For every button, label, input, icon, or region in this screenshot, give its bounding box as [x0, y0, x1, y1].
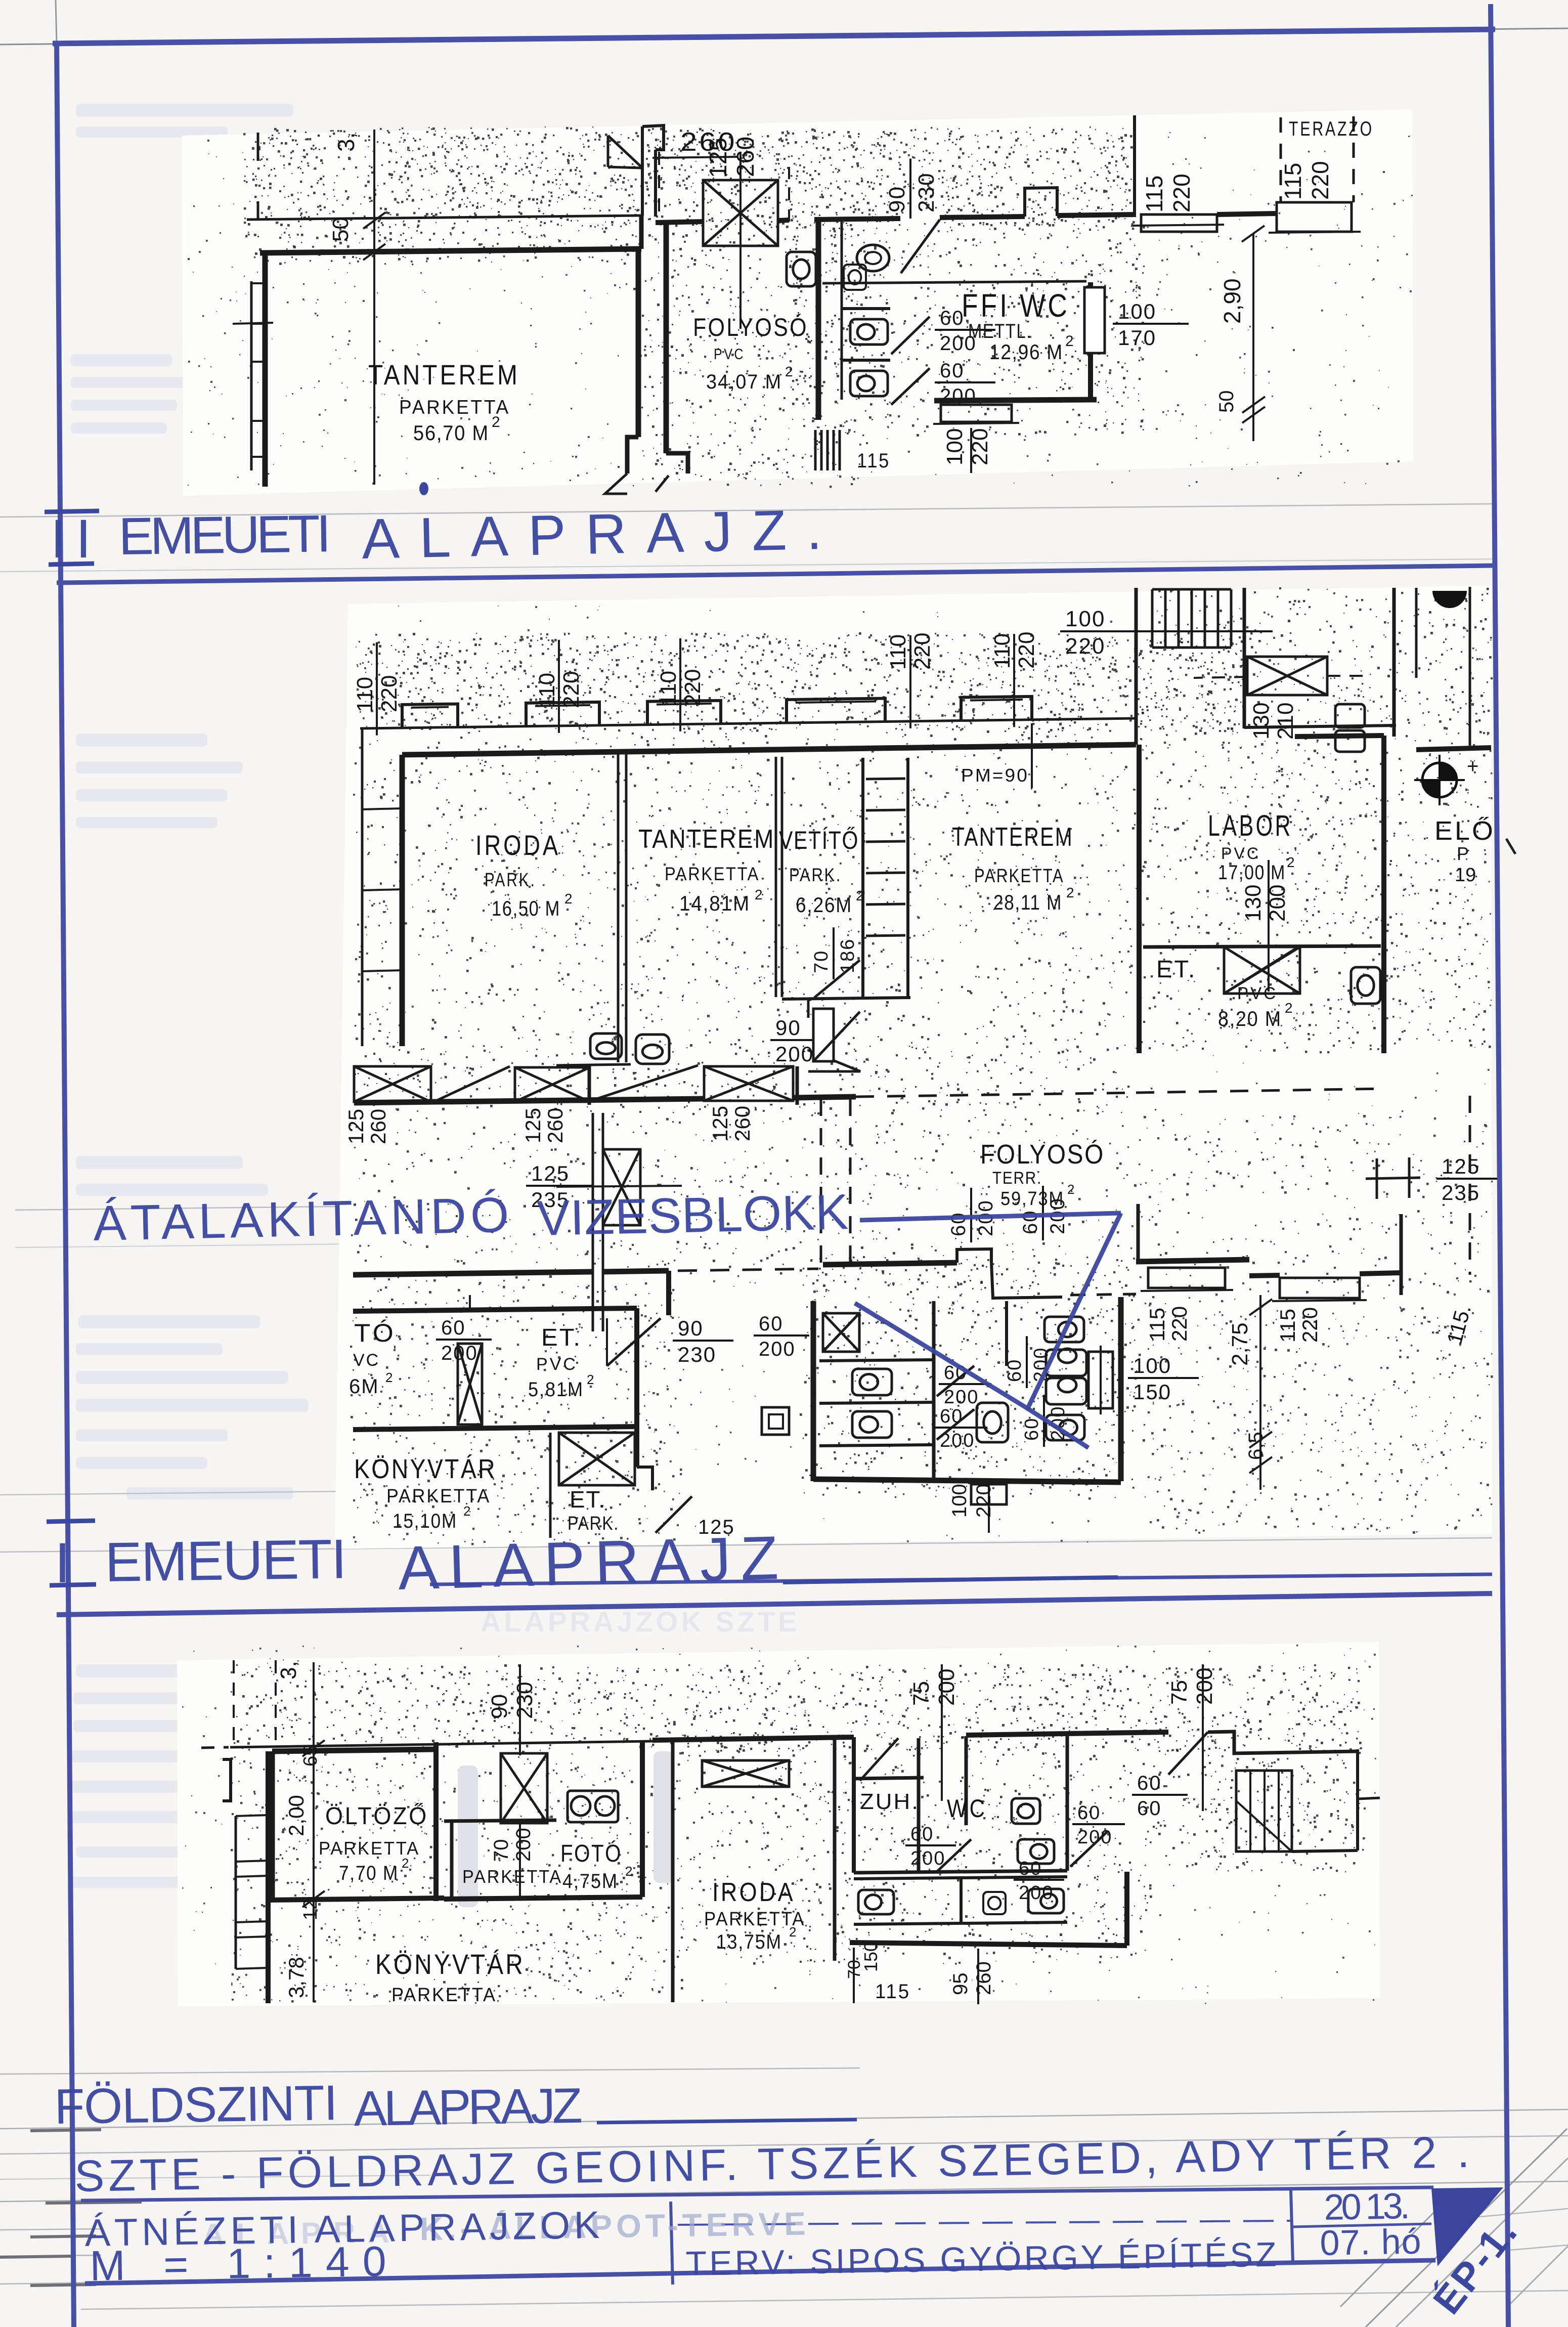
svg-text:110: 110 [990, 633, 1015, 669]
svg-text:ET.: ET. [541, 1324, 582, 1351]
svg-text:95: 95 [949, 1973, 972, 1996]
svg-text:METTL.: METTL. [968, 320, 1032, 342]
svg-text:220: 220 [1298, 1307, 1322, 1343]
svg-text:5,81M: 5,81M [528, 1378, 584, 1401]
svg-text:ALAPRAJZ.: ALAPRAJZ. [361, 498, 822, 571]
svg-text:2: 2 [463, 1503, 470, 1519]
svg-text:VETÍTŐ: VETÍTŐ [779, 826, 859, 854]
svg-text:KÖNYVTÁR: KÖNYVTÁR [354, 1454, 497, 1484]
svg-text:PVC: PVC [714, 346, 745, 363]
svg-text:2: 2 [755, 887, 763, 902]
svg-text:KÖNYVTÁR: KÖNYVTÁR [375, 1948, 525, 1980]
svg-text:70: 70 [811, 950, 832, 973]
svg-text:FOLYOSÓ: FOLYOSÓ [980, 1139, 1105, 1170]
svg-text:260: 260 [730, 1106, 754, 1141]
svg-text:220: 220 [910, 633, 935, 670]
svg-text:LABOR: LABOR [1208, 809, 1293, 842]
svg-text:220: 220 [1168, 174, 1195, 212]
svg-text:130: 130 [1241, 885, 1266, 922]
svg-text:90: 90 [487, 1694, 512, 1719]
svg-text:4,75M: 4,75M [562, 1870, 618, 1892]
svg-text:230: 230 [512, 1682, 537, 1719]
svg-text:235: 235 [1442, 1181, 1480, 1204]
svg-text:260: 260 [973, 1961, 995, 1995]
svg-text:60: 60 [940, 1406, 963, 1427]
svg-text:220: 220 [680, 669, 705, 706]
svg-text:50: 50 [1215, 391, 1238, 413]
svg-text:2: 2 [385, 1370, 393, 1385]
svg-text:2: 2 [1065, 333, 1074, 350]
svg-text:60: 60 [1137, 1797, 1162, 1820]
svg-text:2: 2 [402, 1856, 409, 1871]
svg-text:60: 60 [940, 307, 965, 329]
svg-text:PVC: PVC [536, 1355, 578, 1374]
svg-text:100: 100 [1065, 607, 1105, 631]
svg-text:125: 125 [531, 1161, 570, 1185]
svg-text:110: 110 [886, 634, 910, 670]
svg-text:210: 210 [1273, 703, 1298, 740]
svg-text:6,26M: 6,26M [796, 893, 852, 917]
svg-text:7,70 M: 7,70 M [339, 1862, 399, 1884]
svg-text:8,20 M: 8,20 M [1218, 1007, 1282, 1030]
svg-text:2: 2 [492, 414, 500, 430]
svg-text:TANTEREM: TANTEREM [638, 825, 775, 854]
svg-text:110: 110 [656, 671, 681, 706]
svg-text:100: 100 [942, 428, 967, 465]
svg-text:2: 2 [587, 1372, 594, 1387]
svg-text:TÓ: TÓ [354, 1319, 396, 1347]
svg-text:3,: 3, [333, 133, 359, 152]
svg-text:2: 2 [1287, 854, 1295, 870]
svg-text:60: 60 [1021, 1417, 1042, 1441]
svg-text:150: 150 [860, 1942, 881, 1972]
svg-text:100: 100 [948, 1484, 971, 1518]
svg-text:200: 200 [934, 1669, 959, 1706]
svg-text:230: 230 [914, 173, 939, 212]
svg-text:ET.: ET. [1156, 956, 1197, 983]
svg-text:60: 60 [1137, 1772, 1162, 1794]
svg-text:ALAPRAJZ: ALAPRAJZ [354, 2078, 583, 2136]
svg-text:115: 115 [875, 1980, 910, 2003]
svg-text:200: 200 [944, 1387, 979, 1408]
svg-text:15,10M: 15,10M [393, 1510, 457, 1532]
svg-text:150: 150 [1133, 1380, 1171, 1404]
svg-text:110: 110 [353, 677, 377, 712]
svg-text:IRODA: IRODA [475, 829, 560, 861]
svg-text:260: 260 [543, 1108, 567, 1143]
svg-text:60: 60 [759, 1313, 783, 1335]
svg-text:75: 75 [909, 1681, 934, 1706]
svg-text:200: 200 [1019, 1882, 1054, 1904]
svg-text:EMEUETI: EMEUETI [118, 504, 332, 566]
svg-text:186: 186 [837, 938, 858, 973]
svg-text:200: 200 [910, 1848, 945, 1869]
svg-text:3,78: 3,78 [284, 1957, 308, 1998]
svg-text:PVC: PVC [1237, 984, 1278, 1003]
svg-text:VC: VC [353, 1351, 380, 1370]
svg-text:2: 2 [1285, 1000, 1293, 1016]
svg-text:75: 75 [1167, 1680, 1192, 1705]
svg-text:220: 220 [1065, 634, 1105, 659]
svg-text:PARKETTA: PARKETTA [462, 1866, 562, 1887]
svg-text:16,50 M: 16,50 M [492, 896, 560, 920]
svg-text:115: 115 [857, 450, 890, 472]
svg-text:IRODA: IRODA [712, 1878, 795, 1907]
svg-text:TERR.: TERR. [992, 1169, 1042, 1188]
svg-text:115: 115 [1276, 1309, 1299, 1343]
svg-text:TANTEREM: TANTEREM [952, 823, 1073, 852]
svg-text:PVC: PVC [1221, 844, 1260, 863]
svg-text:2: 2 [564, 891, 573, 907]
svg-text:115: 115 [1145, 1308, 1169, 1342]
svg-text:2: 2 [785, 364, 793, 379]
svg-text:FFI WC: FFI WC [962, 287, 1070, 324]
svg-text:2,00: 2,00 [284, 1795, 308, 1836]
svg-text:14,81M: 14,81M [679, 891, 750, 915]
svg-text:ÖLTÖZŐ: ÖLTÖZŐ [325, 1803, 428, 1830]
svg-text:28,11 M: 28,11 M [993, 890, 1062, 914]
svg-text:60: 60 [441, 1317, 466, 1339]
svg-text:100: 100 [1118, 299, 1156, 323]
svg-text:125: 125 [705, 138, 732, 178]
svg-text:220: 220 [1014, 632, 1039, 669]
svg-text:110: 110 [535, 673, 559, 708]
svg-text:125: 125 [1442, 1154, 1480, 1178]
svg-text:260: 260 [732, 137, 759, 177]
svg-text:PARK.: PARK. [789, 865, 842, 885]
svg-text:60: 60 [1004, 1359, 1025, 1382]
svg-text:50: 50 [328, 217, 353, 242]
svg-text:200: 200 [512, 1828, 535, 1862]
svg-text:60: 60 [1077, 1802, 1101, 1824]
svg-text:3,: 3, [276, 1661, 301, 1679]
svg-text:100: 100 [1133, 1354, 1171, 1377]
svg-text:200: 200 [775, 1042, 814, 1066]
svg-text:ALAPRAJZOK SZTE: ALAPRAJZOK SZTE [481, 1606, 800, 1637]
svg-text:P: P [1457, 843, 1469, 864]
svg-text:260: 260 [366, 1109, 390, 1144]
svg-text:ET.: ET. [570, 1486, 606, 1513]
svg-text:90: 90 [678, 1316, 704, 1340]
svg-text:125: 125 [708, 1106, 732, 1141]
svg-text:PARKETTA: PARKETTA [391, 1985, 497, 2006]
svg-text:17,00 M: 17,00 M [1218, 861, 1286, 884]
svg-text:2,75: 2,75 [1228, 1322, 1252, 1366]
svg-text:115: 115 [1280, 163, 1306, 200]
svg-text:2: 2 [1066, 885, 1074, 900]
svg-text:WC: WC [947, 1794, 987, 1823]
svg-text:PM=90: PM=90 [961, 765, 1029, 786]
svg-text:6M: 6M [349, 1375, 379, 1398]
svg-text:2,90: 2,90 [1219, 278, 1245, 324]
svg-text:70: 70 [490, 1839, 512, 1862]
svg-text:FOLYOSÓ: FOLYOSÓ [693, 313, 808, 341]
svg-text:60: 60 [910, 1824, 934, 1845]
svg-text:13,75M: 13,75M [716, 1931, 782, 1953]
svg-text:PARK.: PARK. [485, 870, 536, 891]
svg-text:TERAZZO: TERAZZO [1289, 118, 1374, 140]
svg-text:60: 60 [1019, 1858, 1042, 1879]
svg-text:230: 230 [678, 1343, 716, 1366]
svg-text:130: 130 [1249, 703, 1274, 740]
svg-text:TANTEREM: TANTEREM [368, 359, 520, 391]
svg-text:EMEUETI: EMEUETI [105, 1528, 347, 1593]
svg-text:200: 200 [1192, 1668, 1217, 1705]
svg-text:170: 170 [1118, 326, 1156, 350]
svg-text:PARKETTA: PARKETTA [665, 864, 760, 884]
svg-text:2: 2 [856, 888, 864, 903]
svg-text:PARKETTA: PARKETTA [386, 1486, 491, 1507]
svg-text:PARKETTA: PARKETTA [974, 866, 1064, 887]
svg-text:125: 125 [344, 1109, 368, 1144]
svg-text:60: 60 [940, 360, 965, 382]
svg-text:FÖLDSZINTI: FÖLDSZINTI [54, 2075, 338, 2134]
svg-text:VIZESBLOKK: VIZESBLOKK [536, 1184, 849, 1246]
svg-text:125: 125 [521, 1108, 545, 1143]
svg-text:220: 220 [559, 671, 584, 708]
svg-text:2: 2 [1067, 1182, 1074, 1197]
svg-text:2: 2 [789, 1924, 796, 1940]
svg-text:90: 90 [885, 186, 909, 212]
svg-text:56,70 M: 56,70 M [413, 421, 489, 445]
svg-text:115: 115 [1141, 176, 1167, 212]
svg-text:ZUH.: ZUH. [860, 1789, 920, 1814]
svg-text:200: 200 [940, 1430, 975, 1451]
svg-text:220: 220 [1307, 161, 1333, 200]
svg-text:220: 220 [1167, 1306, 1191, 1342]
svg-text:ELŐ: ELŐ [1434, 816, 1495, 846]
svg-text:200: 200 [759, 1338, 796, 1360]
svg-text:FOTÓ: FOTÓ [560, 1840, 622, 1867]
svg-text:220: 220 [377, 675, 402, 712]
svg-text:+: + [1467, 755, 1478, 778]
svg-text:6,5: 6,5 [1245, 1432, 1267, 1460]
svg-text:220: 220 [973, 1484, 995, 1518]
svg-text:2: 2 [625, 1864, 632, 1879]
svg-text:90: 90 [775, 1016, 801, 1040]
svg-text:19: 19 [1455, 865, 1476, 886]
svg-text:12,96 M: 12,96 M [989, 340, 1063, 364]
svg-text:34,07 M: 34,07 M [706, 371, 782, 393]
